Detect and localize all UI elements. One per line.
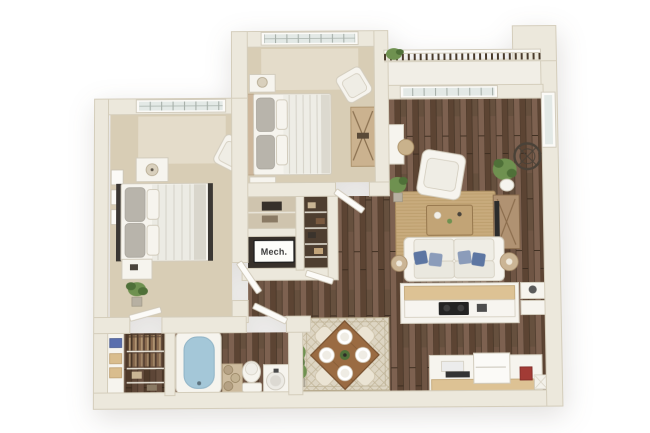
throw-pillow (471, 252, 486, 267)
plan-perspective-wrapper: Mech. (0, 2, 650, 433)
window-light-bedroom-1 (138, 116, 226, 164)
wall-closet-mid-v (296, 196, 304, 270)
pillow (256, 98, 274, 132)
window (261, 32, 358, 45)
window (136, 99, 225, 112)
toilet-lid (245, 363, 257, 375)
bed-2 (247, 94, 331, 175)
throw-blanket (194, 184, 206, 260)
hanging-clothes (129, 353, 163, 366)
blue-bin (110, 338, 122, 347)
throw-pillow (413, 250, 428, 265)
shelf-item (308, 202, 316, 208)
pillow (276, 100, 287, 130)
planter-vase (500, 179, 514, 191)
sofa (404, 237, 505, 282)
wall-bath-dining (288, 332, 302, 395)
mech-closet-label: Mech. (254, 240, 294, 262)
lower-counter (429, 353, 560, 392)
wall-closet-bath (165, 333, 175, 396)
wall-bottom-exterior (93, 390, 563, 409)
throw-blanket (321, 95, 331, 174)
window (541, 92, 556, 147)
coffee-table (426, 205, 472, 235)
pillow (125, 223, 145, 257)
wall-strip-top-2 (162, 317, 246, 334)
toilet (242, 361, 261, 392)
wall-bedroom2-bottom-2 (369, 182, 389, 196)
wall-art-icon (111, 170, 123, 185)
decor-item (130, 264, 138, 270)
faucet-icon (274, 369, 279, 373)
balcony-railing (384, 49, 541, 62)
armchair (416, 149, 467, 201)
lamp-icon (257, 77, 267, 87)
sliding-glass-door (400, 86, 497, 98)
toilet-tank (242, 383, 261, 392)
floor-plan-svg: Mech. (0, 2, 650, 433)
shelf-item (308, 232, 316, 238)
lamp-finial (151, 168, 154, 171)
vanity-sink (263, 365, 288, 394)
breakfast-bar (400, 283, 519, 324)
wall-strip-top-1 (94, 317, 130, 333)
counter-item (446, 371, 470, 377)
folded-item (132, 372, 142, 379)
bed-1 (116, 183, 213, 261)
shelf-item (262, 202, 282, 211)
dresser (351, 107, 375, 166)
pillow (147, 189, 159, 219)
wall-closet-mid-h (248, 228, 296, 236)
decor-item (357, 133, 369, 139)
folded-item (147, 385, 157, 391)
bathtub (176, 331, 221, 395)
sink (441, 361, 463, 371)
shelf-item (314, 248, 323, 254)
mech-label-text: Mech. (261, 247, 288, 257)
wall-left-exterior (93, 99, 108, 409)
pillow (147, 225, 159, 255)
pillow (125, 188, 145, 222)
floor-plan-render: Mech. (0, 0, 650, 433)
red-appliance (520, 367, 532, 380)
basket (110, 368, 122, 378)
pillow (276, 135, 287, 165)
wall-bedroom1-right (232, 98, 248, 262)
wall-strip-top-3 (286, 316, 310, 332)
side-cabinet (521, 300, 545, 314)
shelf-item (316, 218, 325, 224)
shelf-item (262, 215, 278, 222)
refrigerator (473, 353, 510, 384)
footboard (208, 183, 213, 261)
hanging-clothes (129, 335, 163, 350)
throw-pillow (428, 253, 442, 267)
hallway-floor (338, 196, 391, 316)
pillow (257, 135, 275, 169)
basket (110, 354, 122, 364)
counter-item (477, 304, 487, 312)
drain (197, 381, 201, 385)
throw-pillow (457, 250, 472, 265)
cooktop (439, 302, 469, 315)
towel-shelf (222, 364, 242, 394)
desk-chair (398, 139, 414, 155)
headboard (247, 94, 253, 175)
wall-closet-right (328, 196, 339, 280)
